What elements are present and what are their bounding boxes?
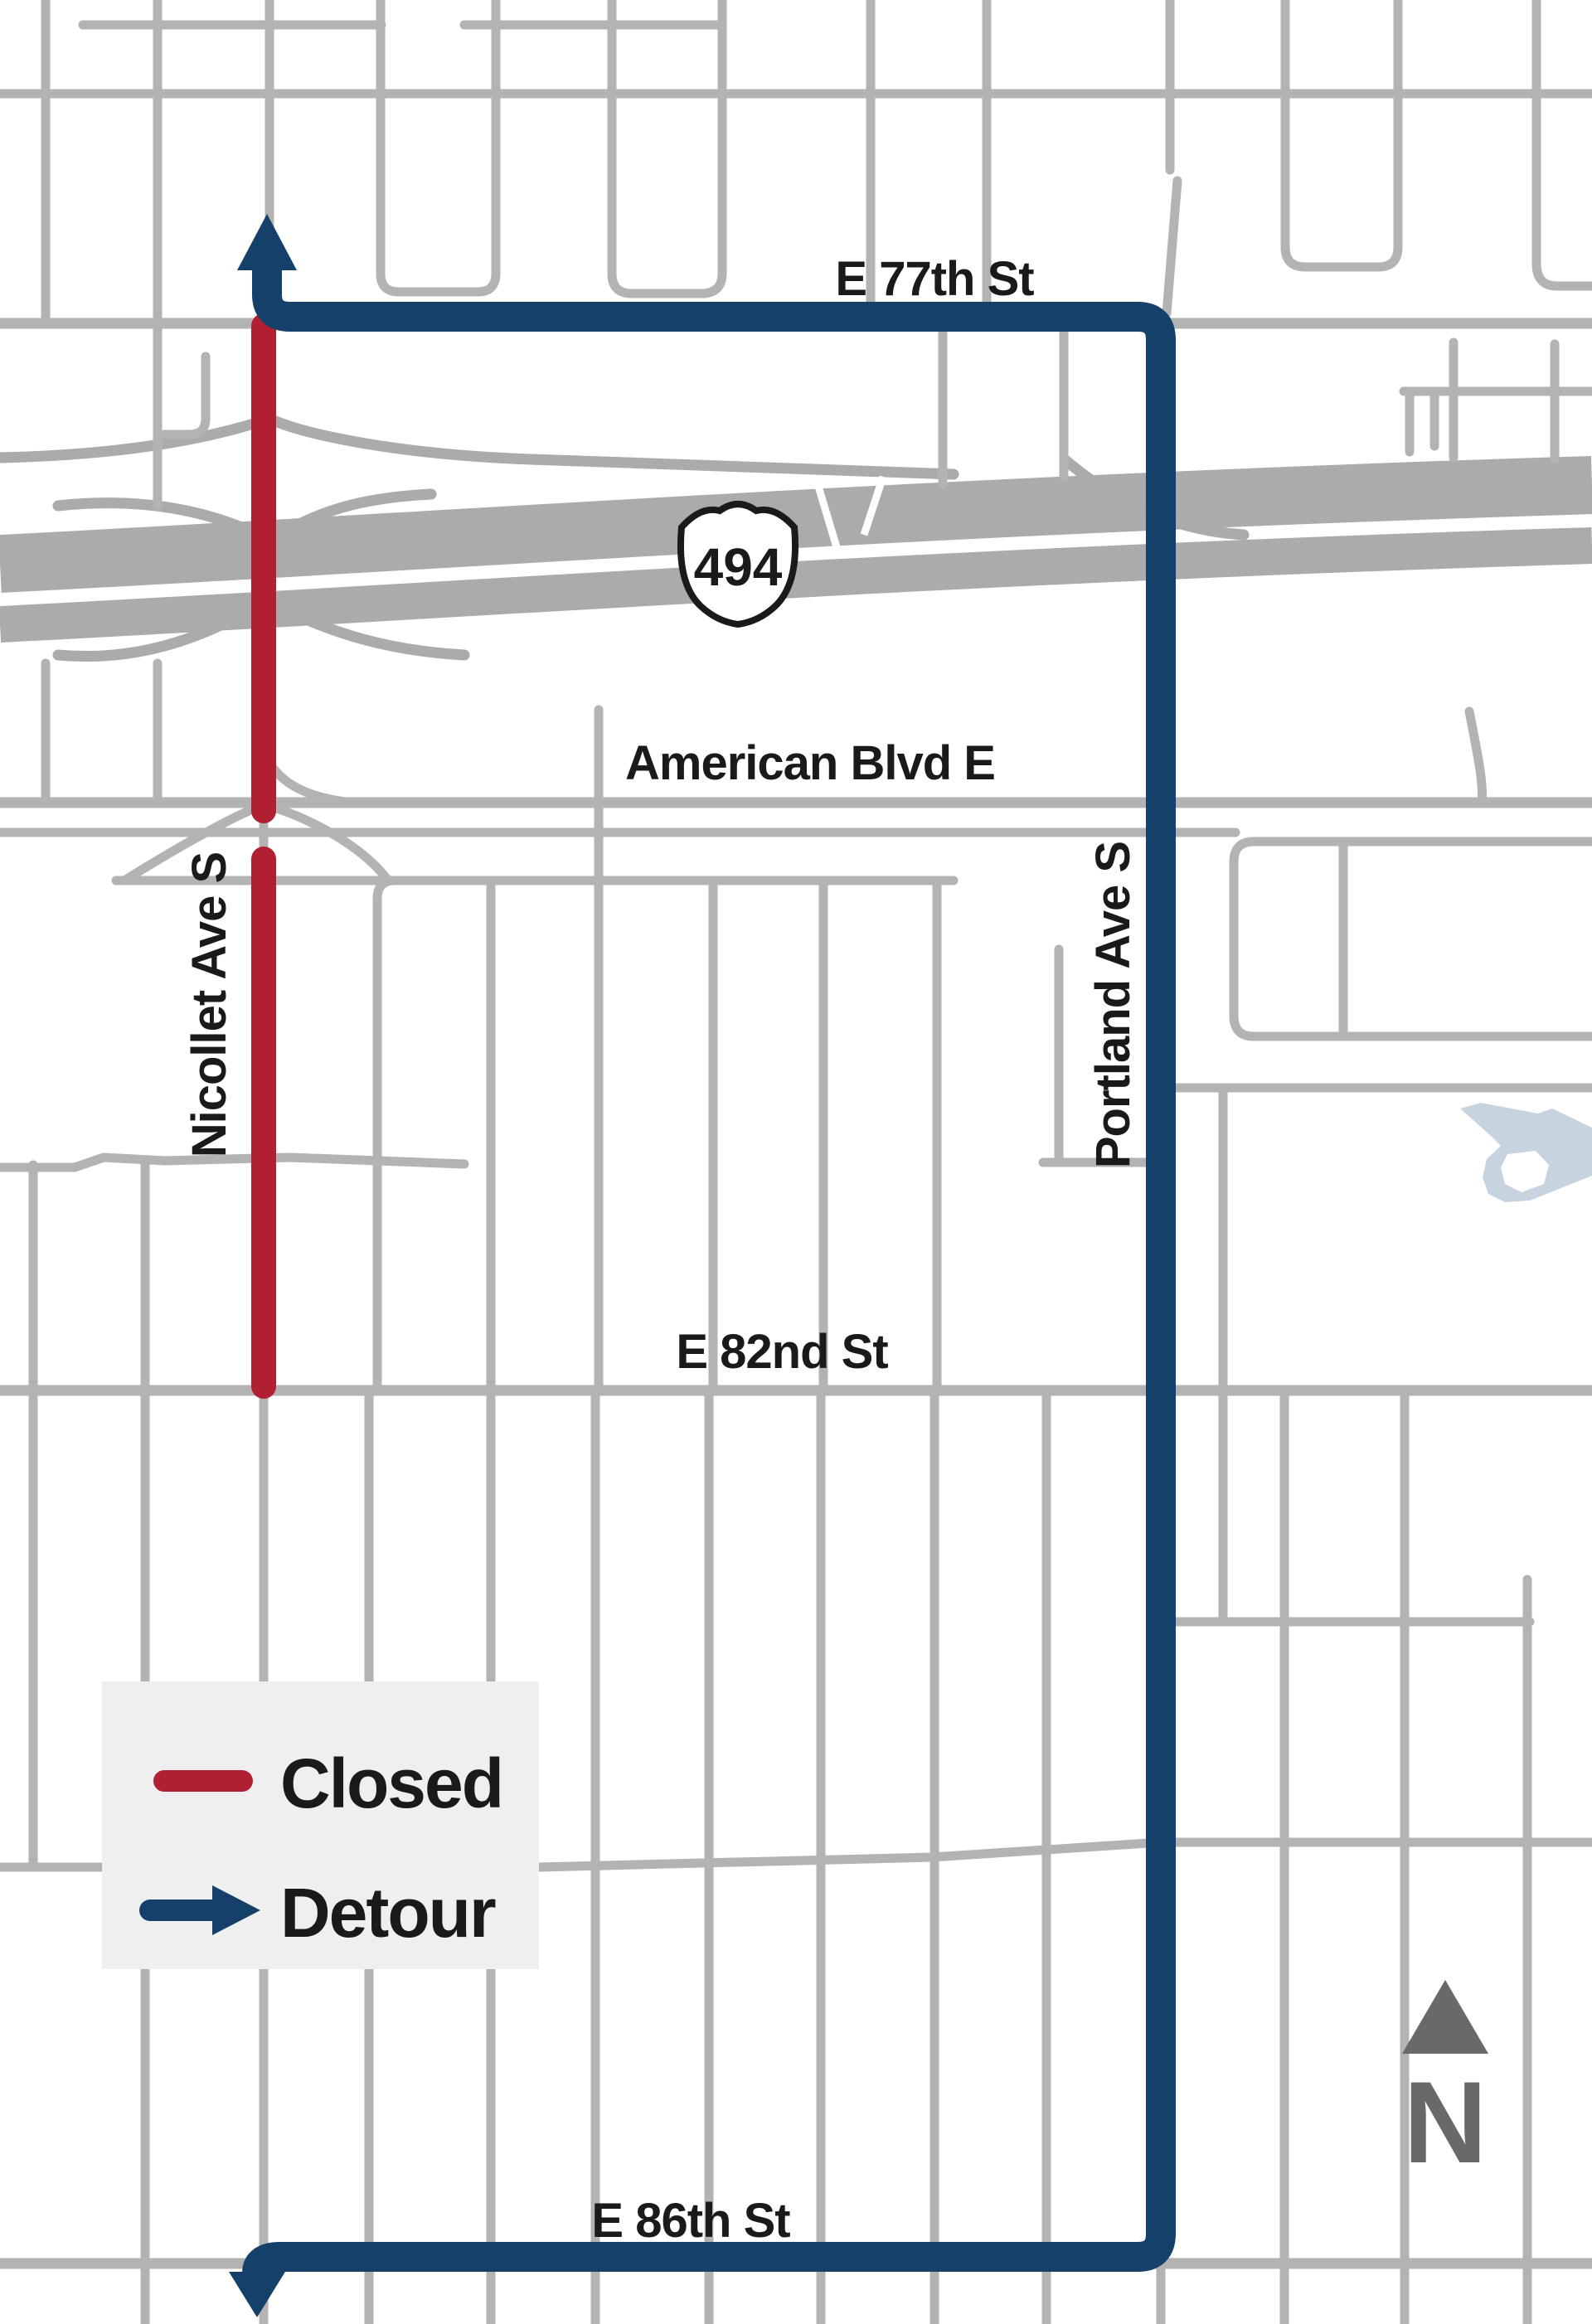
interstate-494-shield: 494 bbox=[681, 504, 795, 624]
legend-detour-label: Detour bbox=[280, 1874, 496, 1952]
map-canvas: 494 E 77th St American Blvd E E 82nd St … bbox=[0, 0, 1592, 2324]
legend: Closed Detour bbox=[102, 1681, 539, 1969]
north-label: N bbox=[1403, 2057, 1487, 2187]
label-nicollet: Nicollet Ave S bbox=[182, 852, 236, 1158]
label-e86th: E 86th St bbox=[591, 2194, 790, 2248]
label-portland: Portland Ave S bbox=[1086, 842, 1140, 1168]
detour-map: 494 E 77th St American Blvd E E 82nd St … bbox=[0, 0, 1592, 2324]
label-american-blvd: American Blvd E bbox=[625, 736, 995, 790]
legend-closed-label: Closed bbox=[280, 1744, 502, 1822]
shield-number: 494 bbox=[694, 537, 783, 597]
label-e77th: E 77th St bbox=[835, 252, 1034, 306]
label-e82nd: E 82nd St bbox=[676, 1325, 888, 1379]
